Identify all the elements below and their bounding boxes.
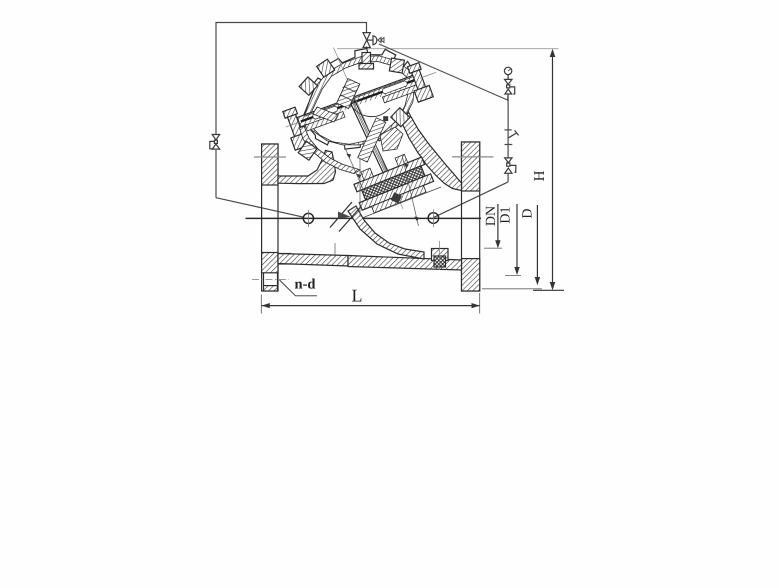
svg-text:D1: D1 <box>499 206 514 223</box>
svg-text:D: D <box>521 208 536 218</box>
svg-text:L: L <box>352 286 363 306</box>
svg-text:DN: DN <box>484 206 499 226</box>
svg-text:n-d: n-d <box>295 277 316 293</box>
svg-text:H: H <box>532 170 548 181</box>
